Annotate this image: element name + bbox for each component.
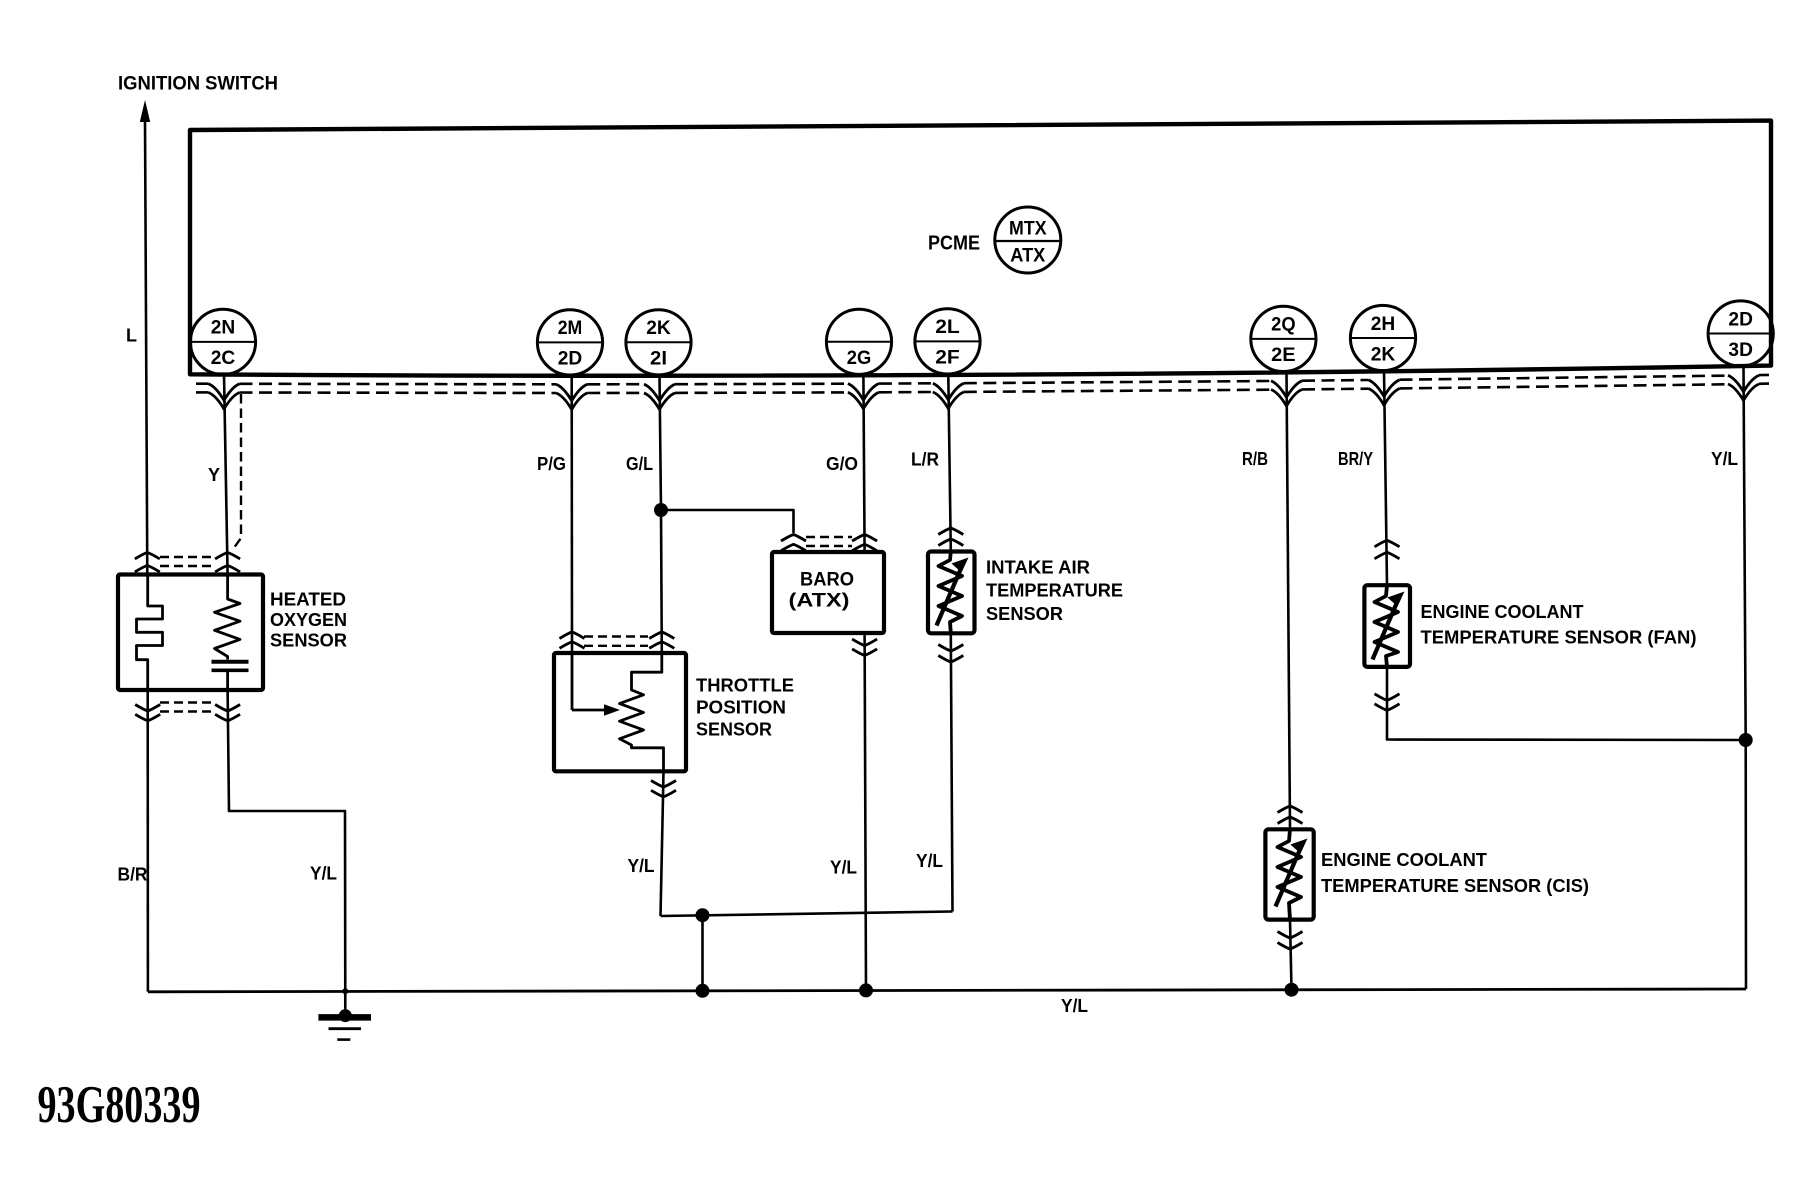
svg-text:93G80339: 93G80339 bbox=[38, 1076, 201, 1134]
svg-text:2K: 2K bbox=[646, 318, 671, 339]
svg-text:2D: 2D bbox=[1728, 309, 1753, 330]
svg-text:3D: 3D bbox=[1728, 340, 1753, 361]
svg-text:THROTTLE: THROTTLE bbox=[696, 675, 794, 696]
svg-text:Y: Y bbox=[208, 465, 220, 485]
svg-text:MTX: MTX bbox=[1009, 219, 1047, 240]
svg-text:Y/L: Y/L bbox=[830, 858, 857, 878]
svg-text:2F: 2F bbox=[935, 348, 960, 369]
svg-text:Y/L: Y/L bbox=[916, 851, 943, 871]
svg-text:OXYGEN: OXYGEN bbox=[270, 609, 347, 630]
svg-text:2H: 2H bbox=[1371, 314, 1396, 335]
svg-text:G/O: G/O bbox=[826, 454, 858, 474]
svg-text:R/B: R/B bbox=[1242, 449, 1268, 469]
svg-text:TEMPERATURE SENSOR (FAN): TEMPERATURE SENSOR (FAN) bbox=[1421, 627, 1697, 648]
svg-text:2E: 2E bbox=[1271, 345, 1296, 366]
svg-text:2C: 2C bbox=[211, 348, 236, 369]
svg-text:Y/L: Y/L bbox=[310, 864, 337, 884]
svg-text:2L: 2L bbox=[935, 317, 960, 338]
svg-text:BARO: BARO bbox=[800, 570, 854, 591]
svg-text:INTAKE AIR: INTAKE AIR bbox=[986, 557, 1090, 578]
svg-text:ATX: ATX bbox=[1010, 246, 1045, 267]
svg-text:TEMPERATURE SENSOR (CIS): TEMPERATURE SENSOR (CIS) bbox=[1321, 875, 1589, 896]
svg-text:G/L: G/L bbox=[626, 454, 653, 474]
svg-text:2D: 2D bbox=[558, 349, 583, 370]
svg-text:B/R: B/R bbox=[118, 865, 148, 885]
svg-text:2K: 2K bbox=[1371, 344, 1396, 365]
svg-text:TEMPERATURE: TEMPERATURE bbox=[986, 580, 1123, 601]
svg-text:2N: 2N bbox=[211, 318, 236, 339]
svg-text:POSITION: POSITION bbox=[696, 697, 786, 718]
svg-text:SENSOR: SENSOR bbox=[270, 630, 347, 651]
svg-text:SENSOR: SENSOR bbox=[696, 719, 772, 740]
svg-text:PCME: PCME bbox=[928, 233, 980, 255]
svg-text:Y/L: Y/L bbox=[1061, 996, 1088, 1016]
svg-text:2I: 2I bbox=[650, 349, 667, 370]
svg-text:P/G: P/G bbox=[537, 454, 566, 474]
svg-text:BR/Y: BR/Y bbox=[1338, 449, 1373, 469]
svg-text:Y/L: Y/L bbox=[628, 856, 655, 876]
svg-text:2Q: 2Q bbox=[1271, 315, 1296, 336]
svg-text:(ATX): (ATX) bbox=[789, 591, 850, 612]
svg-text:IGNITION SWITCH: IGNITION SWITCH bbox=[118, 74, 278, 95]
svg-text:SENSOR: SENSOR bbox=[986, 603, 1063, 624]
svg-text:HEATED: HEATED bbox=[270, 589, 346, 610]
svg-text:2M: 2M bbox=[558, 318, 583, 339]
svg-text:ENGINE COOLANT: ENGINE COOLANT bbox=[1321, 849, 1488, 870]
svg-text:ENGINE COOLANT: ENGINE COOLANT bbox=[1421, 601, 1585, 622]
svg-text:L/R: L/R bbox=[911, 450, 939, 470]
svg-text:L: L bbox=[126, 326, 137, 346]
svg-text:2G: 2G bbox=[847, 348, 872, 369]
svg-text:Y/L: Y/L bbox=[1711, 449, 1738, 469]
